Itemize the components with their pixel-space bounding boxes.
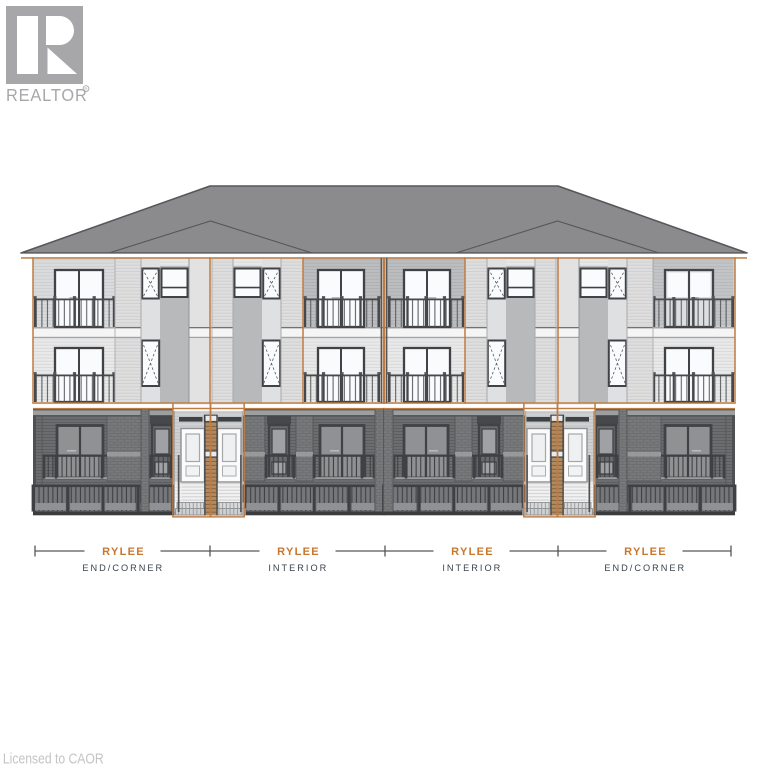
svg-text:RYLEE: RYLEE — [277, 546, 320, 558]
svg-text:END/CORNER: END/CORNER — [82, 563, 164, 573]
svg-text:RYLEE: RYLEE — [102, 546, 145, 558]
svg-text:END/CORNER: END/CORNER — [604, 563, 686, 573]
svg-text:RYLEE: RYLEE — [451, 546, 494, 558]
svg-text:INTERIOR: INTERIOR — [268, 563, 328, 573]
svg-text:REALTOR: REALTOR — [6, 86, 88, 106]
svg-text:RYLEE: RYLEE — [624, 546, 667, 558]
svg-text:INTERIOR: INTERIOR — [442, 563, 502, 573]
svg-text:Licensed to CAOR: Licensed to CAOR — [3, 751, 104, 767]
